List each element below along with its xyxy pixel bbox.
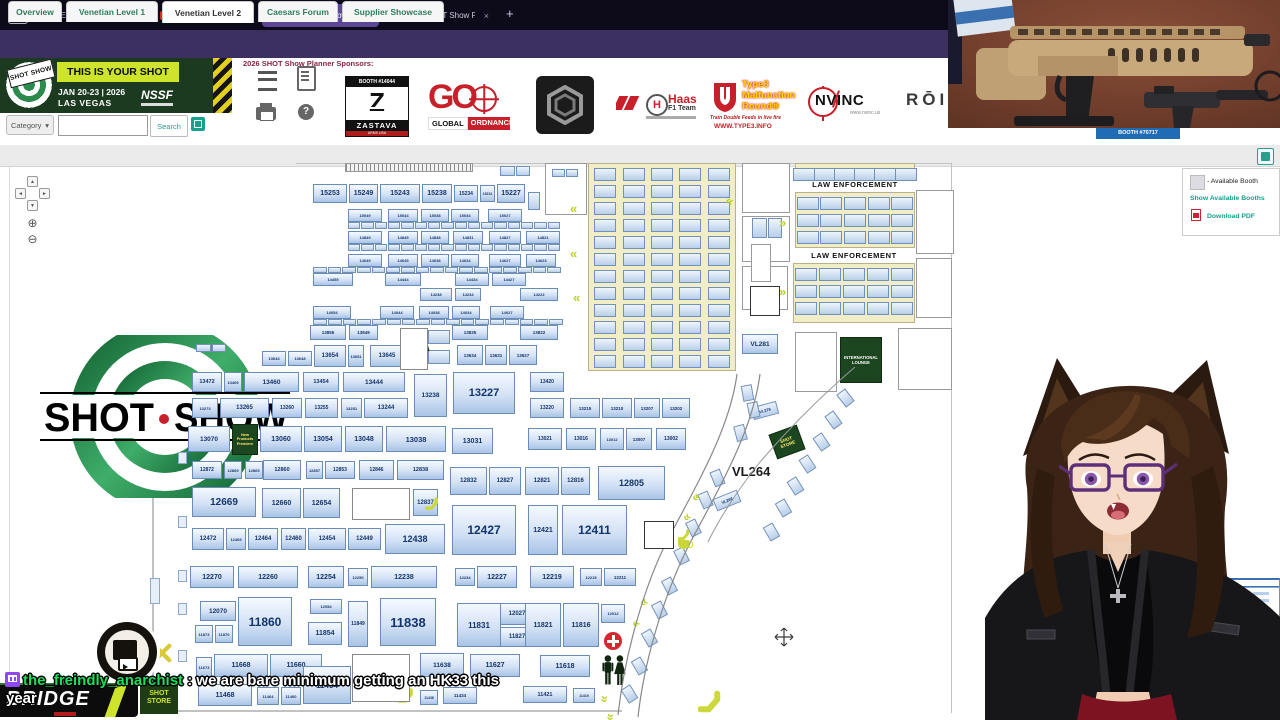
booth-cell[interactable] bbox=[196, 344, 211, 352]
booth-14455[interactable]: 14455 bbox=[313, 273, 353, 286]
booth-13648[interactable]: 13648 bbox=[288, 351, 312, 366]
booth-cell[interactable] bbox=[891, 285, 913, 298]
booth-12846[interactable]: 12846 bbox=[359, 460, 394, 480]
booth-cell[interactable] bbox=[428, 244, 440, 251]
booth-14634[interactable]: 14634 bbox=[451, 254, 479, 267]
booth-14831[interactable]: 14831 bbox=[453, 231, 483, 244]
new-products-premiere-booth[interactable]: New Products Premiere bbox=[232, 424, 258, 455]
booth-cell[interactable] bbox=[428, 330, 450, 344]
booth-13643[interactable]: 13643 bbox=[262, 351, 286, 366]
booth-13631[interactable]: 13631 bbox=[485, 345, 507, 365]
booth-cell[interactable] bbox=[679, 185, 701, 198]
booth-cell[interactable] bbox=[468, 244, 480, 251]
booth-cell[interactable] bbox=[415, 222, 427, 229]
pan-left-button[interactable]: ◄ bbox=[15, 188, 26, 199]
nvinc-sponsor-logo[interactable]: NVINC www.nvinc.us bbox=[808, 86, 898, 124]
booth-11838[interactable]: 11838 bbox=[380, 598, 436, 646]
booth-12070[interactable]: 12070 bbox=[200, 601, 236, 621]
booth-cell[interactable] bbox=[651, 253, 673, 266]
booth-13031[interactable]: 13031 bbox=[452, 428, 493, 454]
booth-cell[interactable] bbox=[891, 268, 913, 281]
booth-cell[interactable] bbox=[623, 168, 645, 181]
booth-12838[interactable]: 12838 bbox=[397, 460, 444, 480]
booth-cell[interactable] bbox=[594, 253, 616, 266]
booth-11821[interactable]: 11821 bbox=[525, 603, 561, 647]
booth-12054[interactable]: 12054 bbox=[310, 599, 342, 614]
booth-cell[interactable] bbox=[494, 222, 506, 229]
booth-12460[interactable]: 12460 bbox=[281, 528, 306, 550]
booth-cell[interactable] bbox=[566, 169, 579, 177]
booth-14427[interactable]: 14427 bbox=[492, 273, 526, 286]
booth-cell[interactable] bbox=[533, 267, 547, 273]
booth-14054[interactable]: 14054 bbox=[313, 306, 351, 319]
tab-venetian-level-1[interactable]: Venetian Level 1 bbox=[66, 1, 158, 22]
booth-13273[interactable]: 13273 bbox=[192, 398, 218, 418]
booth-cell[interactable] bbox=[867, 268, 889, 281]
booth-cell[interactable] bbox=[623, 219, 645, 232]
booth-cell[interactable] bbox=[468, 222, 480, 229]
booth-cell[interactable] bbox=[534, 222, 546, 229]
booth-cell[interactable] bbox=[372, 267, 386, 273]
booth-cell[interactable] bbox=[651, 287, 673, 300]
booth-12254[interactable]: 12254 bbox=[308, 566, 344, 588]
booth-14627[interactable]: 14627 bbox=[489, 254, 521, 267]
tab-supplier-showcase[interactable]: Supplier Showcase bbox=[342, 1, 444, 22]
booth-13420[interactable]: 13420 bbox=[530, 372, 564, 392]
booth-cell[interactable] bbox=[843, 285, 865, 298]
booth-14027[interactable]: 14027 bbox=[490, 306, 524, 319]
global-ordnance-sponsor-logo[interactable]: GO GLOBALORDNANCE bbox=[428, 79, 510, 133]
booth-15227[interactable]: 15227 bbox=[497, 184, 525, 203]
booth-cell[interactable] bbox=[387, 319, 401, 325]
booth-13849[interactable]: 13849 bbox=[349, 325, 378, 340]
booth-cell[interactable] bbox=[708, 253, 730, 266]
booth-13627[interactable]: 13627 bbox=[509, 345, 537, 365]
booth-cell[interactable] bbox=[388, 222, 400, 229]
booth-11816[interactable]: 11816 bbox=[563, 603, 599, 647]
booth-cell[interactable] bbox=[357, 267, 371, 273]
booth-14838[interactable]: 14838 bbox=[421, 231, 449, 244]
booth-cell[interactable] bbox=[623, 270, 645, 283]
booth-11854[interactable]: 11854 bbox=[308, 622, 342, 645]
booth-15253[interactable]: 15253 bbox=[313, 184, 347, 203]
booth-11460[interactable]: 11460 bbox=[281, 687, 301, 705]
booth-13255[interactable]: 13255 bbox=[305, 398, 338, 418]
booth-cell[interactable] bbox=[594, 270, 616, 283]
booth-cell[interactable] bbox=[534, 244, 546, 251]
available-booth-swatch bbox=[1190, 175, 1205, 190]
document-icon[interactable] bbox=[297, 66, 316, 91]
booth-cell[interactable] bbox=[361, 244, 373, 251]
booth-cell[interactable] bbox=[708, 338, 730, 351]
booth-13220[interactable]: 13220 bbox=[530, 398, 564, 418]
booth-12832[interactable]: 12832 bbox=[450, 467, 487, 495]
booth-cell[interactable] bbox=[594, 202, 616, 215]
pan-down-button[interactable]: ▼ bbox=[27, 200, 38, 211]
booth-cell[interactable] bbox=[843, 302, 865, 315]
booth-13855[interactable]: 13855 bbox=[310, 325, 346, 340]
booth-cell[interactable] bbox=[867, 302, 889, 315]
booth-cell[interactable] bbox=[594, 219, 616, 232]
booth-cell[interactable] bbox=[548, 244, 560, 251]
marker bbox=[150, 578, 160, 604]
booth-cell[interactable] bbox=[516, 166, 531, 176]
booth-cell[interactable] bbox=[348, 222, 360, 229]
booth-11870[interactable]: 11870 bbox=[215, 625, 233, 643]
booth-14234[interactable]: 14234 bbox=[455, 288, 481, 301]
booth-12865[interactable]: 12865 bbox=[245, 461, 263, 479]
booth-11618[interactable]: 11618 bbox=[540, 655, 590, 677]
booth-13054[interactable]: 13054 bbox=[304, 426, 342, 452]
booth-cell[interactable] bbox=[844, 214, 866, 227]
booth-14238[interactable]: 14238 bbox=[420, 288, 452, 301]
booth-cell[interactable] bbox=[708, 304, 730, 317]
booth-12421[interactable]: 12421 bbox=[528, 505, 558, 555]
booth-cell[interactable] bbox=[455, 222, 467, 229]
booth-15027[interactable]: 15027 bbox=[488, 209, 522, 222]
booth-cell[interactable] bbox=[708, 270, 730, 283]
hexagon-sponsor-logo[interactable] bbox=[536, 76, 594, 134]
help-icon[interactable]: ? bbox=[298, 104, 314, 120]
escalator-icon bbox=[425, 497, 439, 511]
booth-cell[interactable] bbox=[708, 219, 730, 232]
booth-11419[interactable]: 11419 bbox=[573, 688, 595, 703]
booth-cell[interactable] bbox=[843, 268, 865, 281]
booth-cell[interactable] bbox=[547, 267, 561, 273]
booth-cell[interactable] bbox=[481, 244, 493, 251]
booth-13835[interactable]: 13835 bbox=[452, 325, 488, 340]
booth-cell[interactable] bbox=[431, 319, 445, 325]
booth-cell[interactable] bbox=[623, 321, 645, 334]
booth-13060[interactable]: 13060 bbox=[260, 426, 302, 452]
pan-right-button[interactable]: ► bbox=[39, 188, 50, 199]
booth-cell[interactable] bbox=[679, 338, 701, 351]
booth-VL281[interactable]: VL281 bbox=[742, 334, 778, 354]
booth-cell[interactable] bbox=[708, 168, 730, 181]
booth-cell[interactable] bbox=[361, 222, 373, 229]
booth-cell[interactable] bbox=[594, 304, 616, 317]
booth-cell[interactable] bbox=[679, 219, 701, 232]
booth-14034[interactable]: 14034 bbox=[452, 306, 480, 319]
booth-13651[interactable]: 13651 bbox=[348, 345, 364, 367]
booth-cell[interactable] bbox=[797, 214, 819, 227]
booth-12853[interactable]: 12853 bbox=[325, 461, 355, 479]
booth-13070[interactable]: 13070 bbox=[188, 426, 230, 452]
booth-12669[interactable]: 12669 bbox=[192, 487, 256, 517]
booth-13265[interactable]: 13265 bbox=[220, 398, 269, 418]
booth-cell[interactable] bbox=[594, 287, 616, 300]
booth-cell[interactable] bbox=[708, 185, 730, 198]
booth-cell[interactable] bbox=[891, 231, 913, 244]
booth-cell[interactable] bbox=[623, 236, 645, 249]
booth-13038[interactable]: 13038 bbox=[386, 426, 446, 452]
booth-cell[interactable] bbox=[552, 169, 565, 177]
booth-cell[interactable] bbox=[651, 168, 673, 181]
booth-15049[interactable]: 15049 bbox=[348, 209, 382, 222]
booth-12234[interactable]: 12234 bbox=[455, 568, 475, 586]
booth-11873[interactable]: 11873 bbox=[195, 625, 213, 643]
booth-cell[interactable] bbox=[455, 244, 467, 251]
booth-cell[interactable] bbox=[819, 302, 841, 315]
booth-14821[interactable]: 14821 bbox=[526, 231, 560, 244]
booth-12270[interactable]: 12270 bbox=[190, 566, 234, 588]
crosshair-icon bbox=[471, 86, 497, 112]
booth-cell[interactable] bbox=[679, 253, 701, 266]
search-button[interactable]: Search bbox=[150, 115, 188, 137]
booth-15231[interactable]: 15231 bbox=[480, 185, 495, 202]
booth-cell[interactable] bbox=[402, 319, 416, 325]
booth-cell[interactable] bbox=[500, 166, 515, 176]
booth-13227[interactable]: 13227 bbox=[453, 372, 515, 414]
booth-15249[interactable]: 15249 bbox=[349, 184, 378, 203]
booth-cell[interactable] bbox=[651, 338, 673, 351]
booth-cell[interactable] bbox=[679, 304, 701, 317]
booth-cell[interactable] bbox=[508, 222, 520, 229]
booth-cell[interactable] bbox=[594, 236, 616, 249]
booth-cell[interactable] bbox=[481, 222, 493, 229]
booth-12872[interactable]: 12872 bbox=[192, 461, 222, 479]
booth-12438[interactable]: 12438 bbox=[385, 524, 445, 554]
booth-cell[interactable] bbox=[415, 244, 427, 251]
booth-13645[interactable]: 13645 bbox=[370, 345, 404, 367]
booth-11860[interactable]: 11860 bbox=[238, 597, 292, 646]
booth-13251[interactable]: 13251 bbox=[341, 398, 362, 418]
booth-cell[interactable] bbox=[528, 192, 540, 210]
booth-12821[interactable]: 12821 bbox=[525, 467, 559, 495]
booth-14827[interactable]: 14827 bbox=[489, 231, 521, 244]
booth-cell[interactable] bbox=[521, 222, 533, 229]
booth-cell[interactable] bbox=[819, 268, 841, 281]
booth-cell[interactable] bbox=[651, 321, 673, 334]
booth-12860[interactable]: 12860 bbox=[263, 460, 301, 480]
booth-cell[interactable] bbox=[594, 185, 616, 198]
booth-15234[interactable]: 15234 bbox=[454, 185, 478, 202]
haas-f1-sponsor-logo[interactable]: H Haas F1 Team bbox=[616, 92, 698, 124]
booth-11421[interactable]: 11421 bbox=[523, 686, 567, 703]
booth-cell[interactable] bbox=[820, 214, 842, 227]
booth-cell[interactable] bbox=[679, 236, 701, 249]
tab-caesars-forum[interactable]: Caesars Forum bbox=[258, 1, 338, 22]
booth-13238[interactable]: 13238 bbox=[414, 374, 447, 417]
booth-13016[interactable]: 13016 bbox=[566, 428, 596, 450]
booth-12869[interactable]: 12869 bbox=[224, 461, 242, 479]
booth-14434[interactable]: 14434 bbox=[455, 273, 489, 286]
booth-13822[interactable]: 13822 bbox=[520, 325, 558, 340]
booth-12472[interactable]: 12472 bbox=[192, 528, 224, 550]
booth-cell[interactable] bbox=[521, 244, 533, 251]
booth-cell[interactable] bbox=[623, 253, 645, 266]
booth-cell[interactable] bbox=[428, 350, 450, 364]
booth-cell[interactable] bbox=[416, 319, 430, 325]
search-input[interactable] bbox=[58, 115, 148, 136]
booth-cell[interactable] bbox=[401, 222, 413, 229]
booth-cell[interactable] bbox=[868, 197, 890, 210]
booth-12469[interactable]: 12469 bbox=[226, 528, 246, 550]
booth-cell[interactable] bbox=[388, 244, 400, 251]
booth-13260[interactable]: 13260 bbox=[272, 398, 302, 418]
booth-cell[interactable] bbox=[623, 338, 645, 351]
booth-cell[interactable] bbox=[623, 185, 645, 198]
menu-icon[interactable] bbox=[258, 71, 277, 91]
booth-12857[interactable]: 12857 bbox=[306, 461, 323, 479]
booth-cell[interactable] bbox=[490, 319, 504, 325]
booth-cell[interactable] bbox=[441, 222, 453, 229]
booth-11434[interactable]: 11434 bbox=[443, 687, 477, 704]
marker bbox=[178, 603, 187, 615]
booth-14649[interactable]: 14649 bbox=[348, 254, 382, 267]
booth-cell[interactable] bbox=[679, 202, 701, 215]
booth-12227[interactable]: 12227 bbox=[477, 566, 517, 588]
booth-cell[interactable] bbox=[708, 321, 730, 334]
booth-12454[interactable]: 12454 bbox=[308, 528, 346, 550]
booth-14222[interactable]: 14222 bbox=[520, 288, 558, 301]
booth-cell[interactable] bbox=[348, 244, 360, 251]
booth-11849[interactable]: 11849 bbox=[348, 601, 368, 647]
booth-cell[interactable] bbox=[651, 185, 673, 198]
booth-cell[interactable] bbox=[844, 231, 866, 244]
booth-cell[interactable] bbox=[594, 168, 616, 181]
booth-12427[interactable]: 12427 bbox=[452, 505, 516, 555]
booth-cell[interactable] bbox=[679, 321, 701, 334]
booth-cell[interactable] bbox=[679, 168, 701, 181]
booth-12449[interactable]: 12449 bbox=[348, 528, 381, 550]
booth-14645[interactable]: 14645 bbox=[388, 254, 418, 267]
booth-cell[interactable] bbox=[891, 302, 913, 315]
booth-cell[interactable] bbox=[795, 302, 817, 315]
booth-cell[interactable] bbox=[820, 231, 842, 244]
booth-cell[interactable] bbox=[594, 338, 616, 351]
first-aid-icon bbox=[604, 632, 622, 650]
booth-12816[interactable]: 12816 bbox=[561, 467, 590, 495]
booth-12238[interactable]: 12238 bbox=[371, 566, 437, 588]
booth-12827[interactable]: 12827 bbox=[489, 467, 521, 495]
booth-13215[interactable]: 13215 bbox=[570, 398, 600, 418]
booth-14444[interactable]: 14444 bbox=[385, 273, 421, 286]
booth-cell[interactable] bbox=[623, 287, 645, 300]
booth-cell[interactable] bbox=[212, 344, 227, 352]
booth-cell[interactable] bbox=[819, 285, 841, 298]
booth-cell[interactable] bbox=[708, 287, 730, 300]
booth-13472[interactable]: 13472 bbox=[192, 372, 222, 392]
booth-cell[interactable] bbox=[868, 214, 890, 227]
booth-12219[interactable]: 12219 bbox=[530, 566, 574, 588]
booth-cell[interactable] bbox=[752, 218, 767, 238]
booth-15038[interactable]: 15038 bbox=[421, 209, 449, 222]
booth-cell[interactable] bbox=[868, 231, 890, 244]
booth-11438[interactable]: 11438 bbox=[420, 690, 438, 705]
booth-15243[interactable]: 15243 bbox=[380, 184, 420, 203]
booth-cell[interactable] bbox=[651, 304, 673, 317]
pan-up-button[interactable]: ▲ bbox=[27, 176, 38, 187]
booth-cell[interactable] bbox=[797, 197, 819, 210]
booth-cell[interactable] bbox=[548, 222, 560, 229]
booth-cell[interactable] bbox=[679, 270, 701, 283]
booth-cell[interactable] bbox=[820, 197, 842, 210]
booth-cell[interactable] bbox=[623, 202, 645, 215]
booth-cell[interactable] bbox=[708, 236, 730, 249]
zoom-in-button[interactable]: ⊕ bbox=[26, 217, 39, 230]
booth-cell[interactable] bbox=[844, 197, 866, 210]
booth-cell[interactable] bbox=[651, 202, 673, 215]
booth-14623[interactable]: 14623 bbox=[526, 254, 556, 267]
booth-13634[interactable]: 13634 bbox=[457, 345, 483, 365]
booth-12660[interactable]: 12660 bbox=[262, 488, 301, 518]
booth-cell[interactable] bbox=[891, 197, 913, 210]
booth-13654[interactable]: 13654 bbox=[314, 345, 346, 367]
booth-13469[interactable]: 13469 bbox=[224, 372, 242, 392]
booth-cell[interactable] bbox=[867, 285, 889, 298]
booth-15238[interactable]: 15238 bbox=[422, 184, 452, 203]
booth-14044[interactable]: 14044 bbox=[380, 306, 414, 319]
category-dropdown[interactable]: Category▾ bbox=[6, 115, 54, 135]
download-pdf-link[interactable]: Download PDF bbox=[1207, 213, 1255, 220]
booth-cell[interactable] bbox=[375, 222, 387, 229]
booth-14845[interactable]: 14845 bbox=[388, 231, 418, 244]
booth-cell[interactable] bbox=[505, 319, 519, 325]
booth-13460[interactable]: 13460 bbox=[244, 372, 299, 392]
booth-12250[interactable]: 12250 bbox=[348, 568, 368, 586]
booth-11831[interactable]: 11831 bbox=[457, 603, 501, 647]
booth-cell[interactable] bbox=[795, 285, 817, 298]
booth-12260[interactable]: 12260 bbox=[238, 566, 298, 588]
print-icon[interactable] bbox=[256, 107, 276, 120]
tab-venetian-level-2[interactable]: Venetian Level 2 bbox=[162, 1, 254, 23]
booth-13454[interactable]: 13454 bbox=[303, 372, 339, 392]
show-available-booths-link[interactable]: Show Available Booths bbox=[1190, 195, 1265, 202]
booth-cell[interactable] bbox=[797, 231, 819, 244]
booth-15034[interactable]: 15034 bbox=[451, 209, 479, 222]
roi-sponsor-logo[interactable]: RŌI bbox=[906, 90, 954, 118]
booth-13021[interactable]: 13021 bbox=[528, 428, 562, 450]
new-tab-button[interactable]: + bbox=[506, 6, 514, 21]
booth-cell[interactable] bbox=[795, 268, 817, 281]
booth-cell[interactable] bbox=[375, 244, 387, 251]
booth-cell[interactable] bbox=[441, 244, 453, 251]
booth-13048[interactable]: 13048 bbox=[345, 426, 383, 452]
booth-cell[interactable] bbox=[651, 219, 673, 232]
booth-cell[interactable] bbox=[508, 244, 520, 251]
booth-cell[interactable] bbox=[651, 236, 673, 249]
tab-close-icon[interactable]: × bbox=[484, 11, 489, 21]
booth-cell[interactable] bbox=[430, 267, 444, 273]
booth-14638[interactable]: 14638 bbox=[421, 254, 449, 267]
booth-cell[interactable] bbox=[401, 244, 413, 251]
booth-cell[interactable] bbox=[428, 222, 440, 229]
zastava-sponsor-logo[interactable]: BOOTH #14044 Z ZASTAVA ARMS USA bbox=[345, 76, 409, 137]
type3-sponsor-logo[interactable]: Type3 Malfunction Round® Train Double Fe… bbox=[710, 79, 802, 134]
chat-username: the_freindly_anarchist bbox=[23, 672, 183, 689]
booth-13444[interactable]: 13444 bbox=[343, 372, 405, 392]
booth-12215[interactable]: 12215 bbox=[580, 568, 602, 586]
booth-12464[interactable]: 12464 bbox=[248, 528, 278, 550]
booth-15044[interactable]: 15044 bbox=[388, 209, 418, 222]
booth-11464[interactable]: 11464 bbox=[257, 687, 279, 705]
booth-cell[interactable] bbox=[594, 321, 616, 334]
booth-13244[interactable]: 13244 bbox=[364, 398, 408, 418]
booth-14849[interactable]: 14849 bbox=[348, 231, 382, 244]
map-view-button[interactable] bbox=[191, 117, 205, 131]
booth-12654[interactable]: 12654 bbox=[303, 488, 340, 518]
booth-cell[interactable] bbox=[679, 287, 701, 300]
zoom-out-button[interactable]: ⊖ bbox=[26, 233, 39, 246]
booth-14038[interactable]: 14038 bbox=[419, 306, 449, 319]
booth-cell[interactable] bbox=[494, 244, 506, 251]
booth-cell[interactable] bbox=[891, 214, 913, 227]
booth-cell[interactable] bbox=[623, 304, 645, 317]
tab-overview[interactable]: Overview bbox=[8, 1, 62, 22]
booth-cell[interactable] bbox=[651, 270, 673, 283]
legend-toggle-button[interactable] bbox=[1257, 148, 1274, 165]
